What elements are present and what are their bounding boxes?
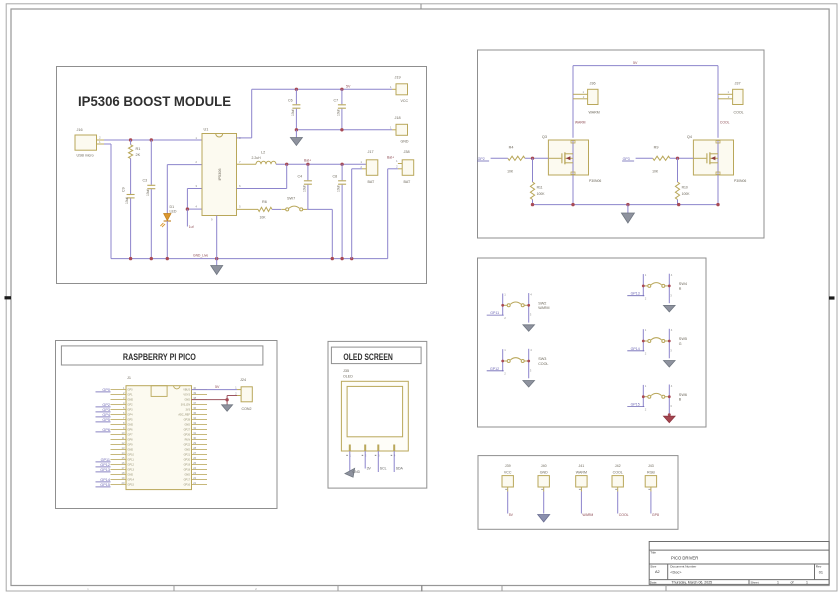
svg-text:19: 19 (122, 476, 125, 480)
svg-text:GP0: GP0 (128, 389, 134, 392)
svg-text:GND: GND (128, 424, 134, 427)
svg-text:GP27: GP27 (184, 429, 191, 432)
svg-text:WARM: WARM (576, 470, 587, 474)
svg-text:GP8: GP8 (128, 439, 134, 442)
svg-text:GP8: GP8 (652, 513, 659, 517)
svg-text:SW7: SW7 (287, 197, 295, 201)
svg-text:22: 22 (193, 476, 196, 480)
svg-text:R: R (679, 287, 682, 291)
svg-text:Title: Title (650, 551, 656, 555)
svg-text:BAT: BAT (404, 180, 412, 184)
svg-text:GP2: GP2 (102, 403, 110, 407)
svg-text:J18: J18 (395, 116, 401, 120)
svg-text:GP17: GP17 (184, 479, 191, 482)
svg-text:VBUS: VBUS (183, 389, 190, 392)
svg-text:WARM: WARM (575, 121, 586, 125)
svg-text:IP5306: IP5306 (218, 168, 222, 180)
svg-text:GP21: GP21 (184, 454, 191, 457)
svg-text:23: 23 (193, 471, 196, 475)
svg-text:GP11: GP11 (101, 458, 110, 462)
svg-text:3V3: 3V3 (186, 409, 191, 412)
svg-text:1uf: 1uf (189, 225, 194, 229)
svg-text:R9: R9 (654, 146, 659, 150)
svg-text:5V: 5V (509, 513, 514, 517)
svg-text:VSYS: VSYS (183, 394, 190, 397)
svg-text:GND: GND (540, 470, 548, 474)
svg-text:10K: 10K (260, 216, 267, 220)
svg-text:10uf: 10uf (291, 109, 295, 116)
svg-text:34: 34 (193, 416, 196, 420)
svg-text:39: 39 (193, 391, 196, 395)
svg-text:1: 1 (806, 581, 808, 585)
svg-text:RUN: RUN (185, 439, 191, 442)
svg-text:10uf: 10uf (125, 197, 129, 204)
svg-text:C4: C4 (298, 175, 303, 179)
svg-text:5V: 5V (346, 85, 351, 89)
svg-text:J16: J16 (77, 128, 83, 132)
svg-text:PICO DRIVER: PICO DRIVER (671, 556, 698, 561)
svg-text:3V: 3V (367, 467, 372, 471)
svg-text:SDA: SDA (396, 467, 404, 471)
svg-text:Date:: Date: (650, 581, 658, 585)
svg-text:VCC: VCC (504, 470, 512, 474)
svg-text:Q4: Q4 (687, 135, 692, 139)
svg-text:GP4: GP4 (128, 414, 134, 417)
svg-text:SW4: SW4 (679, 282, 687, 286)
svg-text:GP16: GP16 (184, 484, 191, 487)
svg-text:3V3_EN: 3V3_EN (181, 404, 191, 407)
svg-text:SW2: SW2 (538, 302, 546, 306)
svg-text:J43: J43 (648, 464, 654, 468)
svg-text:Q3: Q3 (542, 135, 547, 139)
svg-text:10uf: 10uf (337, 109, 341, 116)
svg-text:26: 26 (193, 456, 196, 460)
svg-text:13: 13 (122, 446, 125, 450)
svg-text:P30N06: P30N06 (589, 179, 601, 183)
svg-text:GP22: GP22 (184, 444, 191, 447)
svg-text:GND: GND (128, 449, 134, 452)
svg-text:D1: D1 (170, 205, 175, 209)
svg-text:GP20: GP20 (184, 459, 191, 462)
svg-text:18: 18 (122, 471, 125, 475)
svg-text:GP14: GP14 (128, 479, 135, 482)
svg-text:GP13: GP13 (631, 292, 640, 296)
svg-text:ADC_REF: ADC_REF (178, 414, 190, 417)
svg-text:10uf: 10uf (303, 185, 307, 192)
svg-text:GP18: GP18 (184, 469, 191, 472)
svg-text:2K: 2K (136, 153, 141, 157)
svg-text:J38: J38 (404, 150, 410, 154)
svg-text:GP0: GP0 (102, 388, 110, 392)
svg-text:36: 36 (193, 406, 196, 410)
svg-text:32: 32 (193, 426, 196, 430)
svg-text:C7: C7 (334, 99, 339, 103)
svg-text:28: 28 (193, 446, 196, 450)
svg-text:C9: C9 (122, 187, 126, 192)
svg-text:LED: LED (170, 210, 177, 214)
svg-text:16: 16 (122, 461, 125, 465)
svg-text:Thursday, March 06, 2025: Thursday, March 06, 2025 (672, 581, 713, 585)
svg-text:GP15: GP15 (631, 403, 640, 407)
svg-text:COOL: COOL (619, 513, 629, 517)
svg-text:24: 24 (193, 466, 196, 470)
svg-text:20: 20 (122, 481, 125, 485)
svg-text:J37: J37 (735, 82, 741, 86)
svg-text:GP4: GP4 (102, 413, 110, 417)
svg-text:GP12: GP12 (490, 367, 499, 371)
svg-text:GP12: GP12 (100, 463, 110, 467)
svg-text:GP9: GP9 (128, 444, 134, 447)
svg-text:R1: R1 (136, 147, 141, 151)
svg-text:USB micro: USB micro (77, 153, 94, 157)
svg-text:GP11: GP11 (128, 459, 135, 462)
svg-text:GP7: GP7 (128, 434, 134, 437)
svg-text:100K: 100K (682, 192, 691, 196)
svg-text:Size: Size (650, 565, 656, 569)
svg-text:21: 21 (193, 481, 196, 485)
svg-text:Document Number: Document Number (670, 565, 696, 569)
svg-text:A2: A2 (655, 570, 660, 574)
svg-text:VCC: VCC (401, 99, 409, 103)
svg-text:COOL: COOL (734, 111, 744, 115)
svg-text:SW5: SW5 (679, 337, 687, 341)
svg-text:GND: GND (184, 399, 190, 402)
svg-text:C6: C6 (288, 99, 293, 103)
svg-text:35: 35 (193, 411, 196, 415)
svg-text:Sheet: Sheet (751, 581, 759, 585)
svg-text:GP5: GP5 (102, 418, 110, 422)
svg-text:27: 27 (193, 451, 196, 455)
svg-text:GP26: GP26 (184, 434, 191, 437)
svg-text:GP6: GP6 (102, 428, 110, 432)
svg-text:C3: C3 (143, 179, 148, 183)
svg-text:GND: GND (184, 424, 190, 427)
svg-text:OLED: OLED (343, 375, 353, 379)
svg-text:L2: L2 (261, 151, 265, 155)
svg-text:GP13: GP13 (100, 468, 110, 472)
svg-text:GP3: GP3 (128, 409, 134, 412)
svg-text:10uf: 10uf (337, 185, 341, 192)
svg-text:29: 29 (193, 441, 196, 445)
svg-text:15: 15 (122, 456, 125, 460)
svg-text:COOL: COOL (538, 362, 548, 366)
svg-text:01: 01 (819, 571, 823, 575)
svg-text:GP13: GP13 (128, 469, 135, 472)
svg-text:U1: U1 (204, 128, 209, 132)
svg-text:GP2: GP2 (128, 404, 134, 407)
svg-text:GND: GND (128, 474, 134, 477)
svg-text:5V: 5V (633, 61, 638, 65)
svg-text:GP11: GP11 (490, 311, 499, 315)
svg-text:J41: J41 (579, 464, 585, 468)
svg-text:GND: GND (128, 399, 134, 402)
svg-text:GND: GND (184, 449, 190, 452)
svg-text:17: 17 (122, 466, 125, 470)
svg-text:SCL: SCL (380, 467, 387, 471)
svg-text:GND_Live: GND_Live (193, 254, 208, 258)
svg-text:GP12: GP12 (128, 464, 135, 467)
svg-text:of: of (791, 581, 794, 585)
svg-text:R11: R11 (537, 186, 543, 190)
svg-text:31: 31 (193, 431, 196, 435)
svg-text:GP15: GP15 (128, 484, 135, 487)
svg-text:30: 30 (193, 436, 196, 440)
svg-text:GP28: GP28 (184, 419, 191, 422)
svg-text:J19: J19 (395, 76, 401, 80)
svg-text:Bat+: Bat+ (304, 159, 311, 163)
svg-text:GND: GND (353, 470, 361, 474)
svg-text:10: 10 (122, 431, 125, 435)
svg-text:RASPBERRY PI PICO: RASPBERRY PI PICO (123, 352, 196, 363)
svg-text:P30N06: P30N06 (734, 179, 746, 183)
svg-text:GP14: GP14 (100, 478, 110, 482)
svg-text:COOL: COOL (720, 121, 730, 125)
svg-text:WARM: WARM (582, 513, 593, 517)
svg-text:10K: 10K (507, 170, 514, 174)
svg-text:G: G (679, 342, 682, 346)
svg-text:33: 33 (193, 421, 196, 425)
svg-text:2.2uH: 2.2uH (252, 156, 262, 160)
svg-text:SW3: SW3 (538, 357, 546, 361)
svg-text:GND: GND (401, 140, 409, 144)
svg-text:R10: R10 (682, 186, 688, 190)
svg-text:5V: 5V (215, 385, 220, 389)
svg-text:IP5306 BOOST MODULE: IP5306 BOOST MODULE (78, 94, 231, 109)
svg-text:100K: 100K (537, 192, 546, 196)
svg-text:COOL: COOL (613, 470, 623, 474)
svg-text:J39: J39 (505, 464, 511, 468)
svg-text:37: 37 (193, 401, 196, 405)
svg-text:GP15: GP15 (100, 483, 110, 487)
svg-text:GP1: GP1 (128, 394, 134, 397)
svg-text:BAT: BAT (368, 180, 376, 184)
svg-text:GP10: GP10 (128, 454, 135, 457)
svg-text:C8: C8 (333, 175, 338, 179)
svg-text:CON2: CON2 (242, 407, 252, 411)
svg-text:J24: J24 (240, 378, 246, 382)
svg-text:10uf: 10uf (146, 189, 150, 196)
svg-text:GP3: GP3 (623, 157, 630, 161)
svg-text:1: 1 (777, 581, 779, 585)
svg-text:14: 14 (122, 451, 125, 455)
svg-text:12: 12 (122, 441, 125, 445)
svg-text:R4: R4 (509, 146, 514, 150)
svg-text:R6: R6 (262, 200, 267, 204)
svg-text:GP6: GP6 (128, 429, 134, 432)
svg-text:J1: J1 (127, 376, 131, 380)
svg-text:Rev: Rev (816, 565, 822, 569)
svg-text:OLED SCREEN: OLED SCREEN (343, 352, 393, 363)
svg-text:<Doc>: <Doc> (670, 571, 682, 575)
svg-text:J42: J42 (615, 464, 621, 468)
svg-text:WARM: WARM (589, 111, 600, 115)
svg-text:GP5: GP5 (128, 419, 134, 422)
svg-text:GP19: GP19 (184, 464, 191, 467)
svg-text:GP14: GP14 (631, 347, 640, 351)
svg-text:J17: J17 (368, 150, 374, 154)
svg-text:GP3: GP3 (102, 408, 110, 412)
svg-text:J35: J35 (343, 369, 349, 373)
svg-text:J36: J36 (590, 82, 596, 86)
svg-text:RGB: RGB (647, 470, 655, 474)
svg-text:J40: J40 (541, 464, 547, 468)
svg-text:WARM: WARM (538, 306, 549, 310)
svg-text:10K: 10K (652, 170, 659, 174)
svg-text:Bat+: Bat+ (387, 156, 394, 160)
svg-text:GP2: GP2 (478, 157, 485, 161)
svg-text:GND: GND (184, 474, 190, 477)
svg-text:25: 25 (193, 461, 196, 465)
svg-text:SW6: SW6 (679, 393, 687, 397)
